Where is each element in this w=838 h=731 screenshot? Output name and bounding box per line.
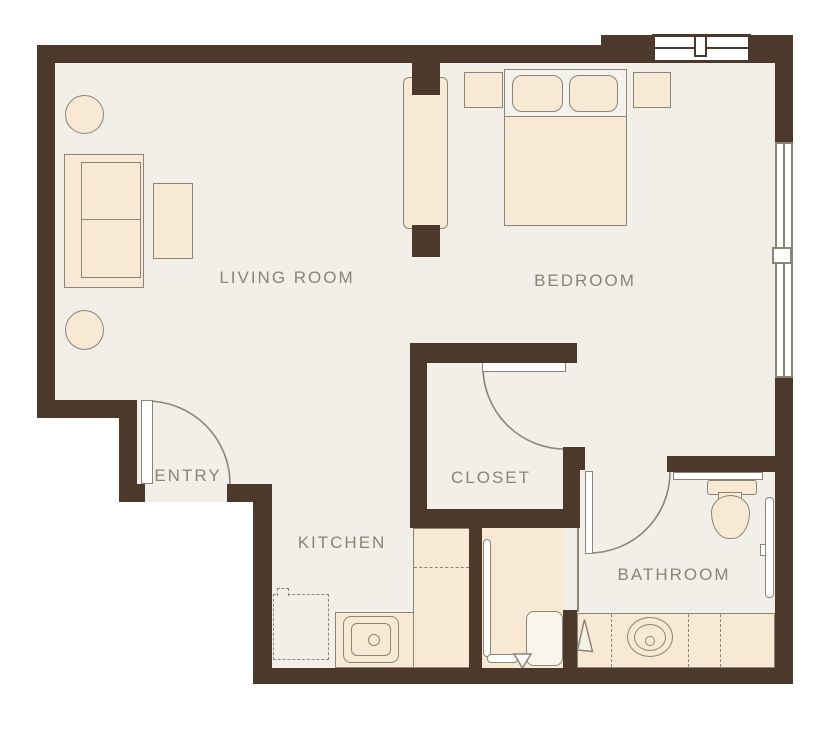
wall-bathroom-top — [667, 456, 793, 472]
kitchen-sink-drain — [368, 634, 380, 646]
wall-closet-top — [410, 343, 577, 363]
entry-label: ENTRY — [154, 466, 221, 486]
wall-closet-right — [563, 470, 580, 528]
wall-closet-bottom — [410, 509, 580, 528]
wall-kitchen-left — [253, 484, 272, 684]
side-table-bottom-icon — [65, 310, 104, 350]
shower-seat-icon — [526, 611, 563, 666]
vanity-counter — [577, 613, 775, 668]
kitchen-counter-right — [413, 528, 470, 668]
wall-divider-stub-top — [412, 63, 440, 95]
shower-grab-bar-horizontal — [487, 654, 518, 663]
refrigerator-notch — [277, 588, 289, 596]
wall-top-left — [37, 45, 601, 63]
kitchen-label: KITCHEN — [298, 533, 387, 553]
wall-closet-left — [410, 343, 427, 528]
coffee-table-icon — [153, 183, 193, 259]
wall-grab-bar-right — [765, 497, 774, 598]
bathroom-door-leaf — [585, 471, 593, 554]
toilet-grab-bar — [673, 472, 763, 480]
wall-shower-left — [469, 528, 482, 668]
closet-label: CLOSET — [451, 468, 531, 488]
bedroom-label: BEDROOM — [534, 271, 636, 291]
pillow-left-icon — [512, 75, 563, 112]
wall-right-upper — [775, 63, 793, 143]
wall-divider-stub-bottom — [412, 225, 440, 257]
mattress-icon — [504, 116, 627, 226]
wall-right-lower — [775, 377, 793, 684]
sofa-icon — [64, 154, 144, 288]
nightstand-left-icon — [464, 72, 503, 108]
wall-bottom — [253, 668, 793, 684]
armoire-icon — [403, 77, 448, 229]
wall-top-right — [750, 35, 793, 63]
bedroom-right-window-transom — [772, 247, 792, 264]
pillow-right-icon — [569, 75, 618, 112]
vanity-sink-drain — [645, 636, 655, 646]
wall-left — [37, 45, 55, 418]
living-room-label: LIVING ROOM — [219, 268, 354, 288]
floor-plan: LIVING ROOM BEDROOM ENTRY CLOSET KITCHEN… — [0, 0, 838, 731]
side-table-top-icon — [65, 95, 104, 134]
bedroom-top-window-mullion — [694, 35, 707, 57]
wall-shower-right — [563, 610, 577, 668]
bathroom-label: BATHROOM — [618, 565, 731, 585]
wall-entry-step-h1 — [37, 400, 137, 418]
sofa-cushions — [81, 162, 141, 278]
nightstand-right-icon — [633, 72, 671, 108]
shower-bathroom-divider-line — [577, 528, 579, 612]
wall-closet-right-stub — [563, 447, 585, 470]
wall-top-bedroom-jog — [601, 35, 653, 63]
shower-grab-bar-vertical — [483, 539, 491, 657]
wall-entry-step-h2 — [119, 484, 145, 502]
entry-door-leaf — [141, 400, 153, 484]
refrigerator-icon — [273, 594, 329, 660]
